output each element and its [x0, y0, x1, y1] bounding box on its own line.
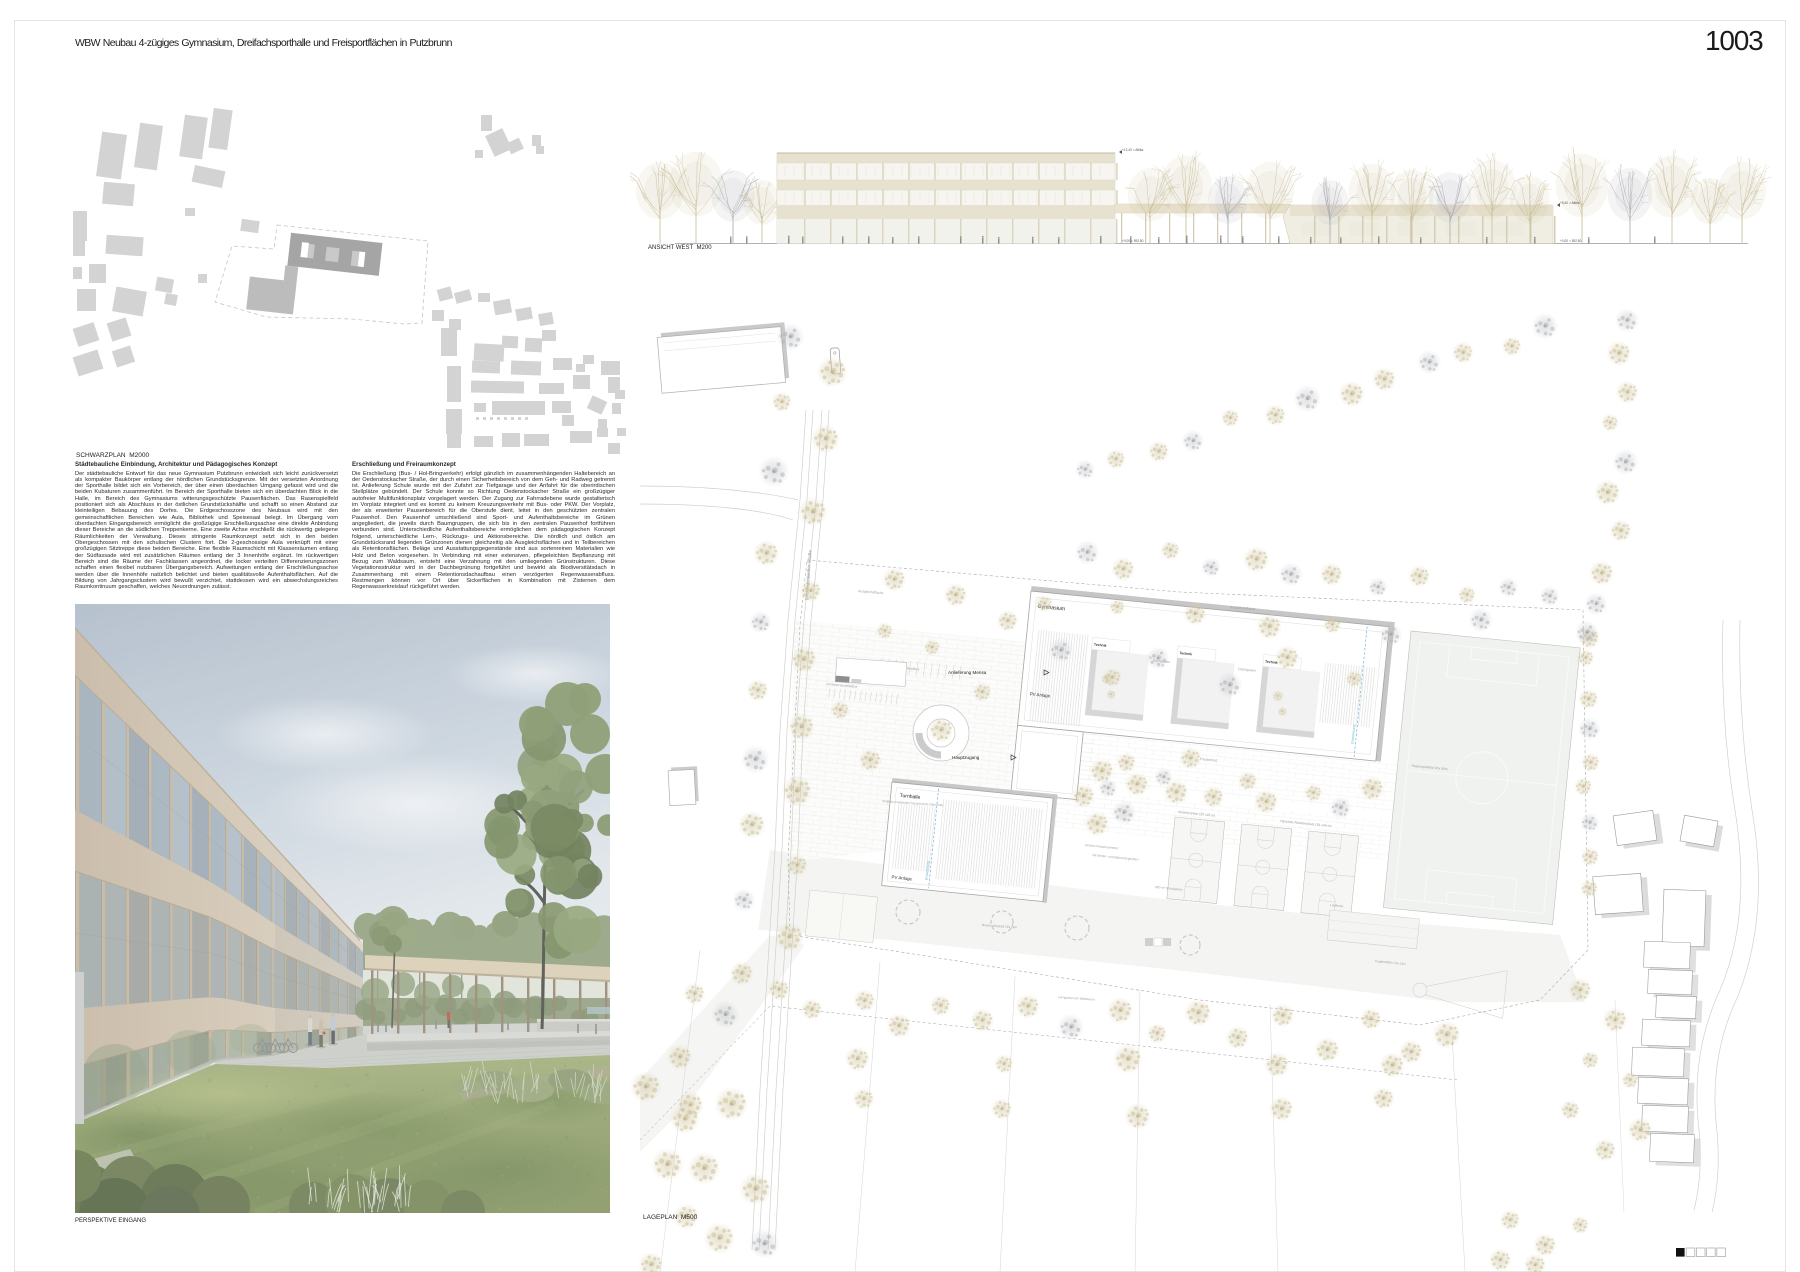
svg-text:Lerngarten am Waldsaum: Lerngarten am Waldsaum: [1058, 995, 1095, 1002]
svg-text:mit Kletter- und Balanciergerä: mit Kletter- und Balanciergeräten: [1092, 853, 1139, 862]
svg-text:Hauptzugang: Hauptzugang: [952, 755, 980, 760]
svg-text:Grünes Klassenzimmer: Grünes Klassenzimmer: [1085, 843, 1119, 850]
svg-text:Anlieferung Mensa: Anlieferung Mensa: [948, 670, 987, 675]
svg-text:Ausgleichsfläche: Ausgleichsfläche: [858, 589, 884, 595]
